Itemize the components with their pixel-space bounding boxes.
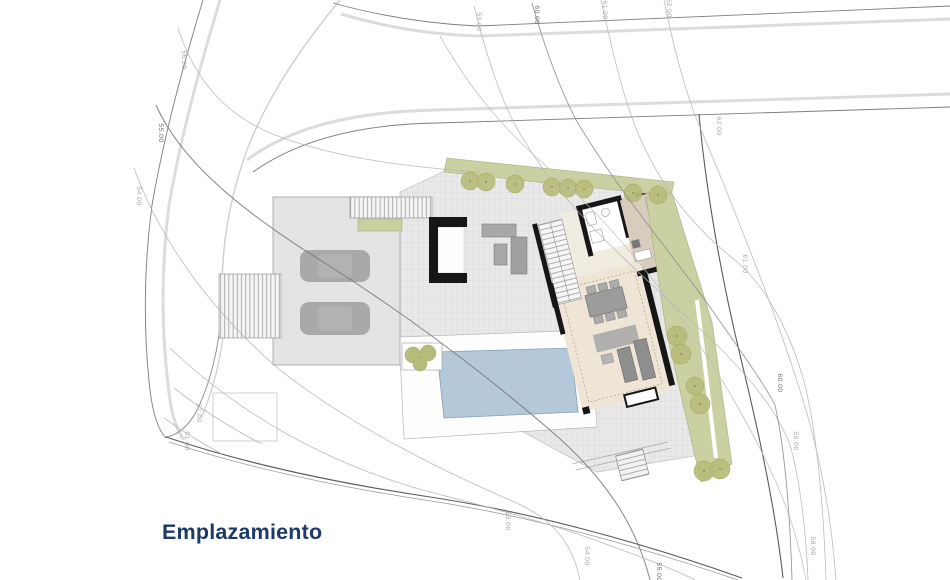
car-1 [300, 250, 370, 282]
contour-label: 59.00 [475, 12, 482, 31]
contour-label: 61.00 [741, 254, 748, 273]
sun-lounger [511, 237, 527, 274]
contour-label: 61.00 [601, 0, 608, 19]
road-edge-left [163, 0, 220, 440]
driveway-ramp [219, 274, 281, 338]
outdoor-seat [494, 244, 507, 265]
contour-label: 55.00 [157, 123, 164, 142]
contour-label: 54.00 [583, 546, 590, 565]
courtyard [429, 217, 467, 283]
swimming-pool [437, 348, 578, 418]
contour-label: 53.00 [504, 511, 511, 530]
site-plan-drawing: 56.00 55.00 54.00 59.00 60.00 61.00 62.0… [0, 0, 950, 580]
contour-label: 62.00 [665, 0, 672, 18]
page-title: Emplazamiento [162, 520, 322, 545]
contour-label: 60.00 [776, 373, 783, 392]
road-edge-top-inner [247, 94, 950, 160]
garage-block [213, 197, 432, 441]
contour-label: 56.00 [180, 50, 187, 69]
entry-stairs [350, 197, 432, 218]
car-2 [300, 302, 370, 335]
contour-label: 55.00 [655, 562, 662, 580]
contour-label: 59.00 [792, 431, 799, 450]
contour-label: 52.00 [195, 403, 202, 422]
contour-label: 51.00 [183, 431, 190, 450]
contour-label: 58.00 [809, 536, 816, 555]
courtyard-floor [438, 227, 464, 273]
outdoor-bench [482, 224, 516, 237]
site-plan-page: 56.00 55.00 54.00 59.00 60.00 61.00 62.0… [0, 0, 950, 580]
contour-label: 62.00 [715, 116, 722, 135]
garage-planter-strip [358, 219, 402, 231]
lower-pad [213, 393, 277, 441]
contour-label: 54.00 [135, 186, 142, 205]
road-edge-top [341, 14, 950, 36]
contour-label: 60.00 [533, 5, 540, 24]
